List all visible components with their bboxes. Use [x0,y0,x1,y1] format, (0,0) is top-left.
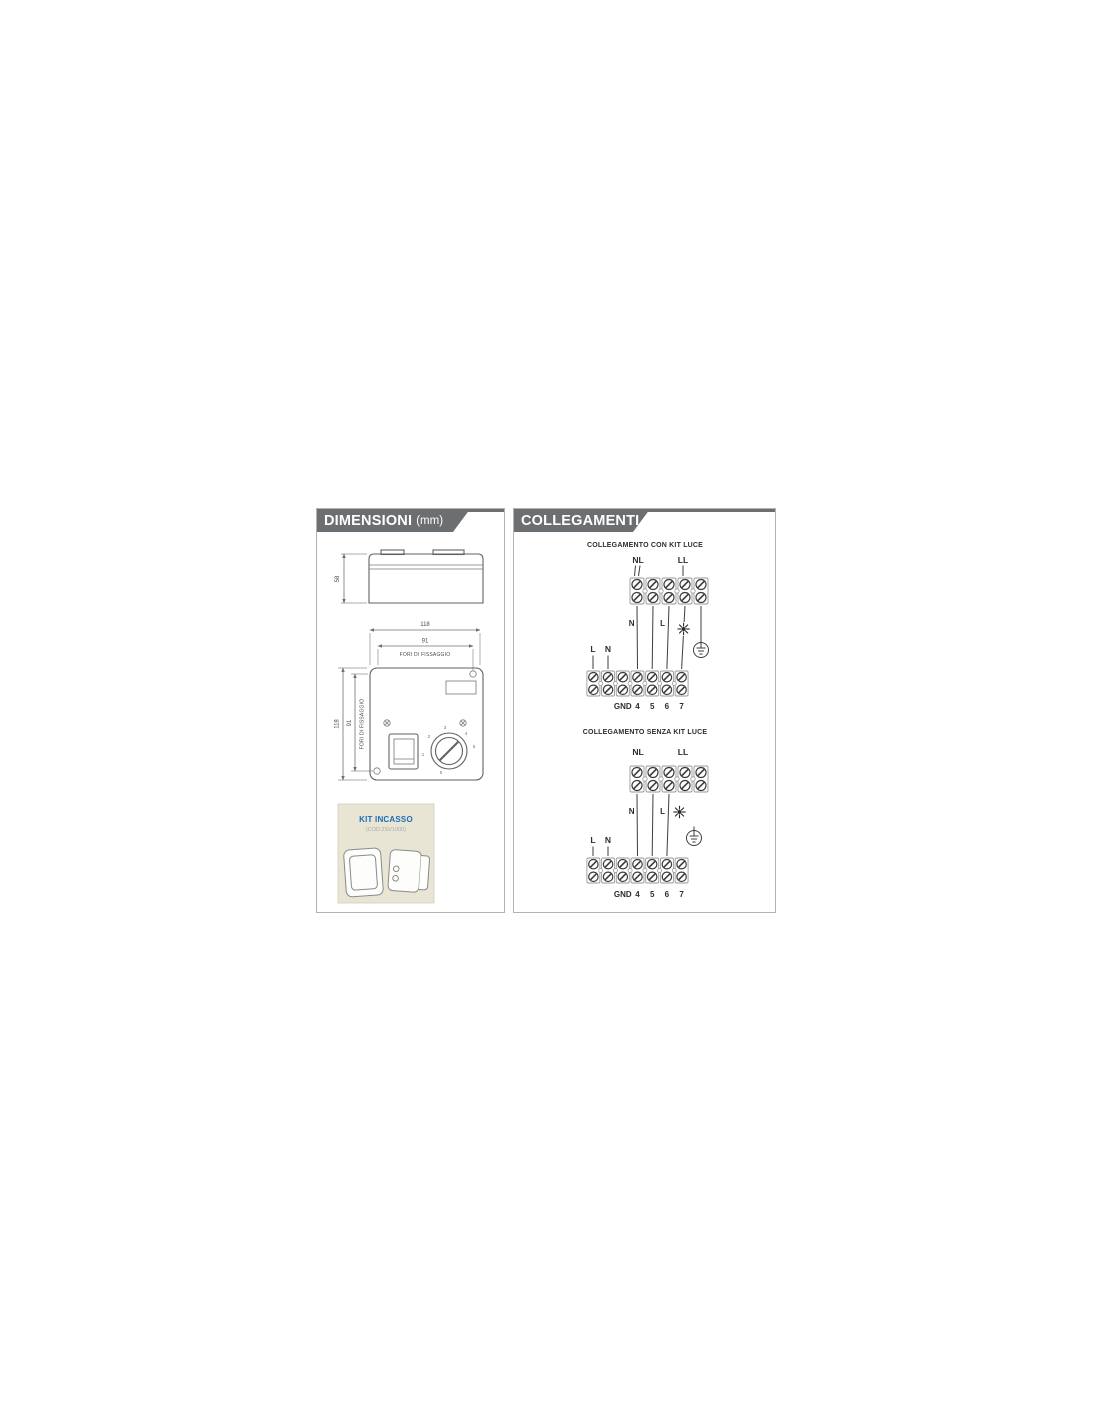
fori-di-fissaggio-top: FORI DI FISSAGGIO [400,652,451,658]
knob-position-3: 3 [444,725,447,730]
label-wire-l: L [660,807,665,816]
knob-position-5: 5 [473,744,476,749]
kit-frame-drawing [343,848,383,897]
knob-position-4: 4 [465,731,468,736]
label-4: 4 [635,702,640,711]
diagram-title: COLLEGAMENTO CON KIT LUCE [587,542,703,549]
label-ll: LL [678,555,688,565]
label-5: 5 [650,702,655,711]
front-view-dimensions-left: 118 91 FORI DI FISSAGGIO [335,668,374,780]
rocker-switch [389,734,418,769]
label-4: 4 [635,890,640,899]
collegamenti-panel: COLLEGAMENTI [513,508,776,913]
fori-di-fissaggio-left: FORI DI FISSAGGIO [360,699,366,750]
screw-right-icon [460,720,466,726]
terminal-block-top [630,578,708,604]
label-in-n: N [605,835,611,845]
front-view: 0 1 2 3 4 5 [370,668,483,780]
label-nl: NL [632,555,643,565]
terminal-block-bottom [587,671,688,696]
lamp-icon [677,622,691,636]
knob-position-0: 0 [440,770,443,775]
diagram-title: COLLEGAMENTO SENZA KIT LUCE [583,729,708,736]
front-view-dimensions-top: 118 91 FORI DI FISSAGGIO [370,622,480,670]
collegamenti-drawing: COLLEGAMENTO CON KIT LUCE NL LL N L [514,509,775,912]
connection-wires [637,794,669,856]
diagram-senza-kit-luce: COLLEGAMENTO SENZA KIT LUCE NL LL N L L … [583,729,708,899]
terminal-block-bottom [587,858,688,883]
knob-position-2: 2 [428,734,431,739]
knob-position-1: 1 [422,752,425,757]
label-wire-n: N [629,619,635,628]
kit-body-drawing [388,849,430,893]
label-6: 6 [665,702,670,711]
label-in-l: L [590,644,595,654]
earth-ground-icon [687,831,702,846]
supply-wires [635,566,684,577]
label-nl: NL [632,747,643,757]
speed-selector-knob: 0 1 2 3 4 5 [422,725,476,775]
dim-height-118: 118 [335,719,341,729]
label-in-l: L [590,835,595,845]
label-6: 6 [665,890,670,899]
fixing-hole-top-right [470,671,476,677]
screw-left-icon [384,720,390,726]
dim-depth-58: 58 [335,575,341,582]
dim-hole-91: 91 [422,639,429,645]
fixing-hole-bottom-left [374,768,380,774]
label-in-n: N [605,644,611,654]
terminal-labels: GND 4 5 6 7 [614,890,684,899]
side-view: 58 [335,550,483,603]
dim-width-118: 118 [420,622,430,628]
label-ll: LL [678,747,688,757]
label-7: 7 [679,890,684,899]
label-wire-l: L [660,619,665,628]
dim-hole-v-91: 91 [347,719,353,726]
terminal-labels: GND 4 5 6 7 [614,702,684,711]
input-wires [593,656,608,670]
terminal-block-top [630,766,708,792]
label-wire-n: N [629,807,635,816]
connection-wires [637,606,701,669]
input-wires [593,847,608,857]
label-7: 7 [679,702,684,711]
diagram-con-kit-luce: COLLEGAMENTO CON KIT LUCE NL LL N L [587,542,709,711]
label-window [446,681,476,694]
label-gnd: GND [614,890,632,899]
earth-ground-icon [694,643,709,658]
label-gnd: GND [614,702,632,711]
kit-incasso-code: (COD.2SV1000) [366,827,406,833]
kit-incasso-card: KIT INCASSO (COD.2SV1000) [338,804,434,903]
page: DIMENSIONI (mm) 58 [0,0,1100,1422]
lamp-icon [673,805,687,819]
label-5: 5 [650,890,655,899]
kit-incasso-title: KIT INCASSO [359,815,413,824]
dimensioni-drawing: 58 118 91 FORI DI FISSAGGIO 118 [317,509,504,912]
dimensioni-panel: DIMENSIONI (mm) 58 [316,508,505,913]
